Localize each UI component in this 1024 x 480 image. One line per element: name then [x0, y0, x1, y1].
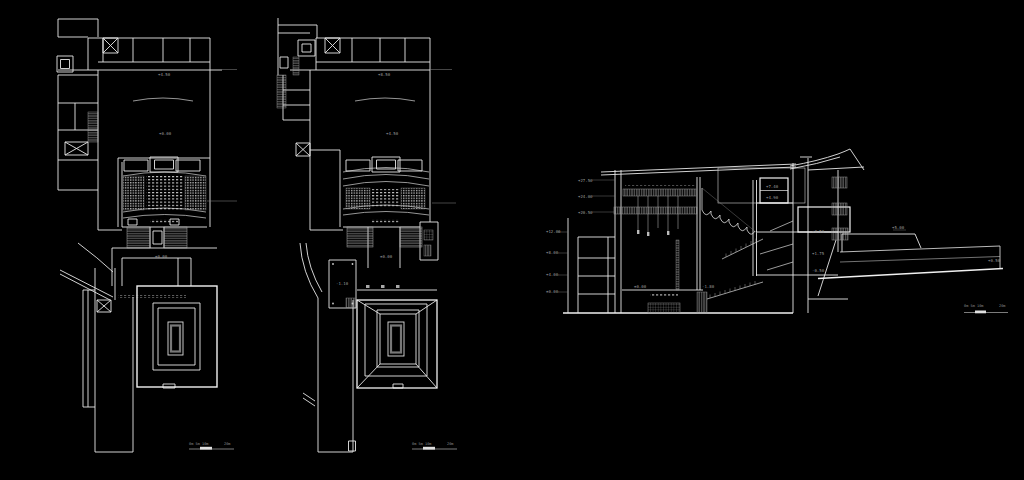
level-label: ±0.00: [380, 254, 393, 259]
plan-lower-ladder: [293, 57, 299, 75]
level-label: +8.50: [378, 72, 391, 77]
level-label: +4.90: [766, 195, 779, 200]
section-gridiron-dots: [625, 184, 695, 186]
level-label: +27.50: [578, 178, 593, 183]
scale-bar-block: [200, 447, 212, 450]
scale-bar-labels: 0m 5m 10m: [964, 304, 983, 308]
section-slab-hatch-2: [832, 203, 847, 215]
plan-lower-pit-strip: [372, 219, 399, 224]
level-label: +12.00: [546, 229, 561, 234]
scale-bar-label-right: 20m: [999, 304, 1006, 308]
section-flybar-band-2: [614, 207, 697, 214]
plan-lower-seating-right: [401, 188, 425, 209]
level-label: +1.75: [812, 251, 825, 256]
plan-lower-seating-left: [346, 188, 370, 209]
section-understage-dots: [650, 294, 678, 297]
section-understage-hatch: [648, 303, 680, 313]
level-label: +7.40: [766, 184, 779, 189]
plan-upper-pit-strip: [150, 219, 178, 224]
section-proscenium-base-hatch: [697, 292, 707, 313]
section-slab-hatch-3: [832, 228, 848, 240]
level-label: -0.50: [812, 268, 825, 273]
plan-lower-stair-left: [347, 227, 373, 247]
plan-lower-stair-wing: [277, 75, 286, 108]
level-label: +24.00: [578, 194, 593, 199]
cad-viewport: +4.50 +0.00 ±0.00 0m 5m 10m 20m: [0, 0, 1024, 480]
level-label: +20.50: [578, 210, 593, 215]
plan-upper-stair-wing: [88, 112, 98, 142]
level-label: ±0.00: [546, 289, 559, 294]
level-label: +3.50: [812, 229, 825, 234]
plan-upper-stair-right: [164, 227, 187, 248]
plan-upper-seating-center: [146, 176, 184, 210]
scale-bar-labels: 0m 5m 10m: [412, 442, 431, 446]
level-label: +4.50: [158, 72, 171, 77]
cad-drawing: +4.50 +0.00 ±0.00 0m 5m 10m 20m: [0, 0, 1024, 480]
section-slab-hatch-1: [832, 177, 847, 188]
plan-upper-backstage-marks: [118, 295, 186, 298]
scale-bar-label-right: 20m: [447, 442, 454, 446]
scale-bar-label-right: 20m: [224, 442, 231, 446]
level-label: ±0.00: [634, 284, 647, 289]
level-label: +5.00: [892, 225, 905, 230]
level-label: +8.00: [546, 250, 559, 255]
section-ladder: [676, 240, 679, 290]
level-label: -1.10: [336, 281, 349, 286]
level-label: +0.00: [159, 131, 172, 136]
plan-lower-sidestage-hatch-1: [424, 230, 433, 240]
level-label: +0.50: [988, 258, 1001, 263]
plan-upper-seating-right: [185, 176, 206, 210]
plan-upper-stair-left: [127, 227, 150, 248]
scale-bar-block: [975, 311, 986, 314]
level-label: +4.50: [386, 131, 399, 136]
section-flybar-band-1: [623, 189, 696, 196]
scale-bar-block: [423, 447, 435, 450]
plan-lower-room-hatch: [346, 298, 355, 308]
level-label: -1.80: [702, 284, 715, 289]
plan-lower-stair-right: [400, 227, 422, 247]
plan-lower-sidestage-hatch-2: [424, 245, 431, 256]
plan-lower-seating-center: [372, 189, 399, 208]
plan-upper-seating-left: [123, 176, 144, 210]
level-label: ±0.00: [155, 254, 168, 259]
canvas-background: [0, 0, 1024, 480]
level-label: +4.00: [546, 272, 559, 277]
scale-bar-labels: 0m 5m 10m: [189, 442, 208, 446]
